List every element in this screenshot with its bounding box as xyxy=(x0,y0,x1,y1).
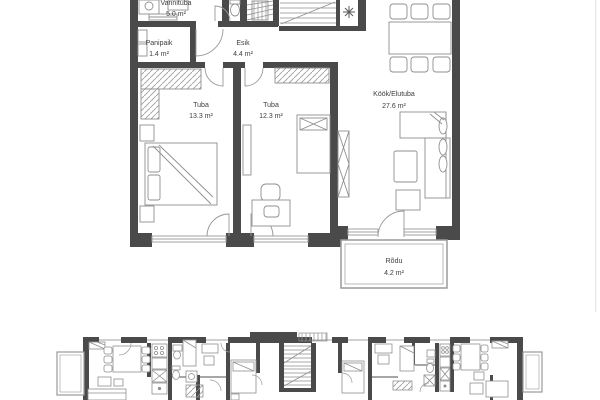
room-label-tuba-12: Tuba 12.3 m² xyxy=(259,102,283,120)
room-label-kook-elutuba: Köök/Elutuba 27.6 m² xyxy=(373,91,415,110)
room-label-panipaik: Panipaik 1.4 m² xyxy=(146,40,173,58)
room-name: Vannituba xyxy=(160,0,191,7)
room-name: Tuba xyxy=(263,102,279,109)
room-label-esik: Esik 4.4 m² xyxy=(233,40,254,58)
room-area: 4.2 m² xyxy=(384,270,405,277)
building-overview-strip xyxy=(57,332,542,400)
room-area: 4.4 m² xyxy=(233,51,254,58)
floor-plan-page: Vannituba 5.0 m² Panipaik 1.4 m² Esik 4.… xyxy=(0,0,600,400)
room-label-tuba-13: Tuba 13.3 m² xyxy=(189,102,213,120)
room-name: Panipaik xyxy=(146,40,173,47)
page-edge-line xyxy=(595,0,596,312)
snowflake-icon xyxy=(343,6,355,18)
room-name: Tuba xyxy=(193,102,209,109)
room-name: Köök/Elutuba xyxy=(373,91,415,98)
room-name: Rõdu xyxy=(386,258,403,265)
room-area: 1.4 m² xyxy=(149,51,170,58)
room-area: 5.0 m² xyxy=(166,11,187,18)
room-area: 12.3 m² xyxy=(259,113,283,120)
room-area: 13.3 m² xyxy=(189,113,213,120)
overview-stairs-icon xyxy=(284,346,311,386)
main-apartment-plan: Vannituba 5.0 m² Panipaik 1.4 m² Esik 4.… xyxy=(130,0,460,288)
room-area: 27.6 m² xyxy=(382,103,406,110)
room-name: Esik xyxy=(236,40,250,47)
floor-plan-canvas: Vannituba 5.0 m² Panipaik 1.4 m² Esik 4.… xyxy=(0,0,600,400)
entrance-steps xyxy=(299,333,327,341)
furniture-main xyxy=(138,0,451,226)
